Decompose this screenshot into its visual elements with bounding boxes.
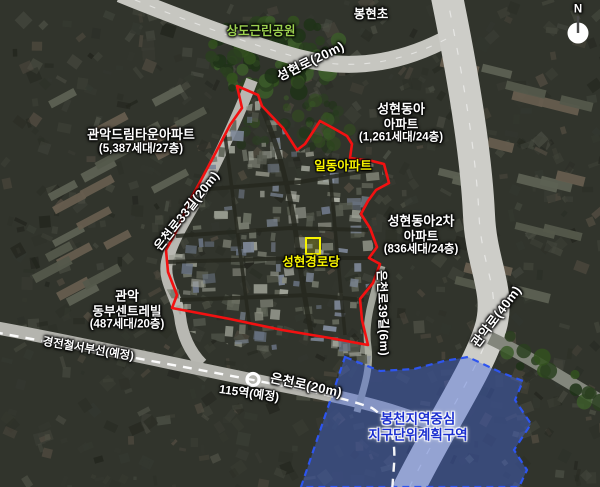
senior-center-marker	[306, 238, 320, 254]
satellite-map: 상도근린공원 봉현초 N 성현로(20m) 은천로33길(20m) 은천로39길…	[0, 0, 600, 487]
satellite-basemap	[0, 0, 600, 487]
